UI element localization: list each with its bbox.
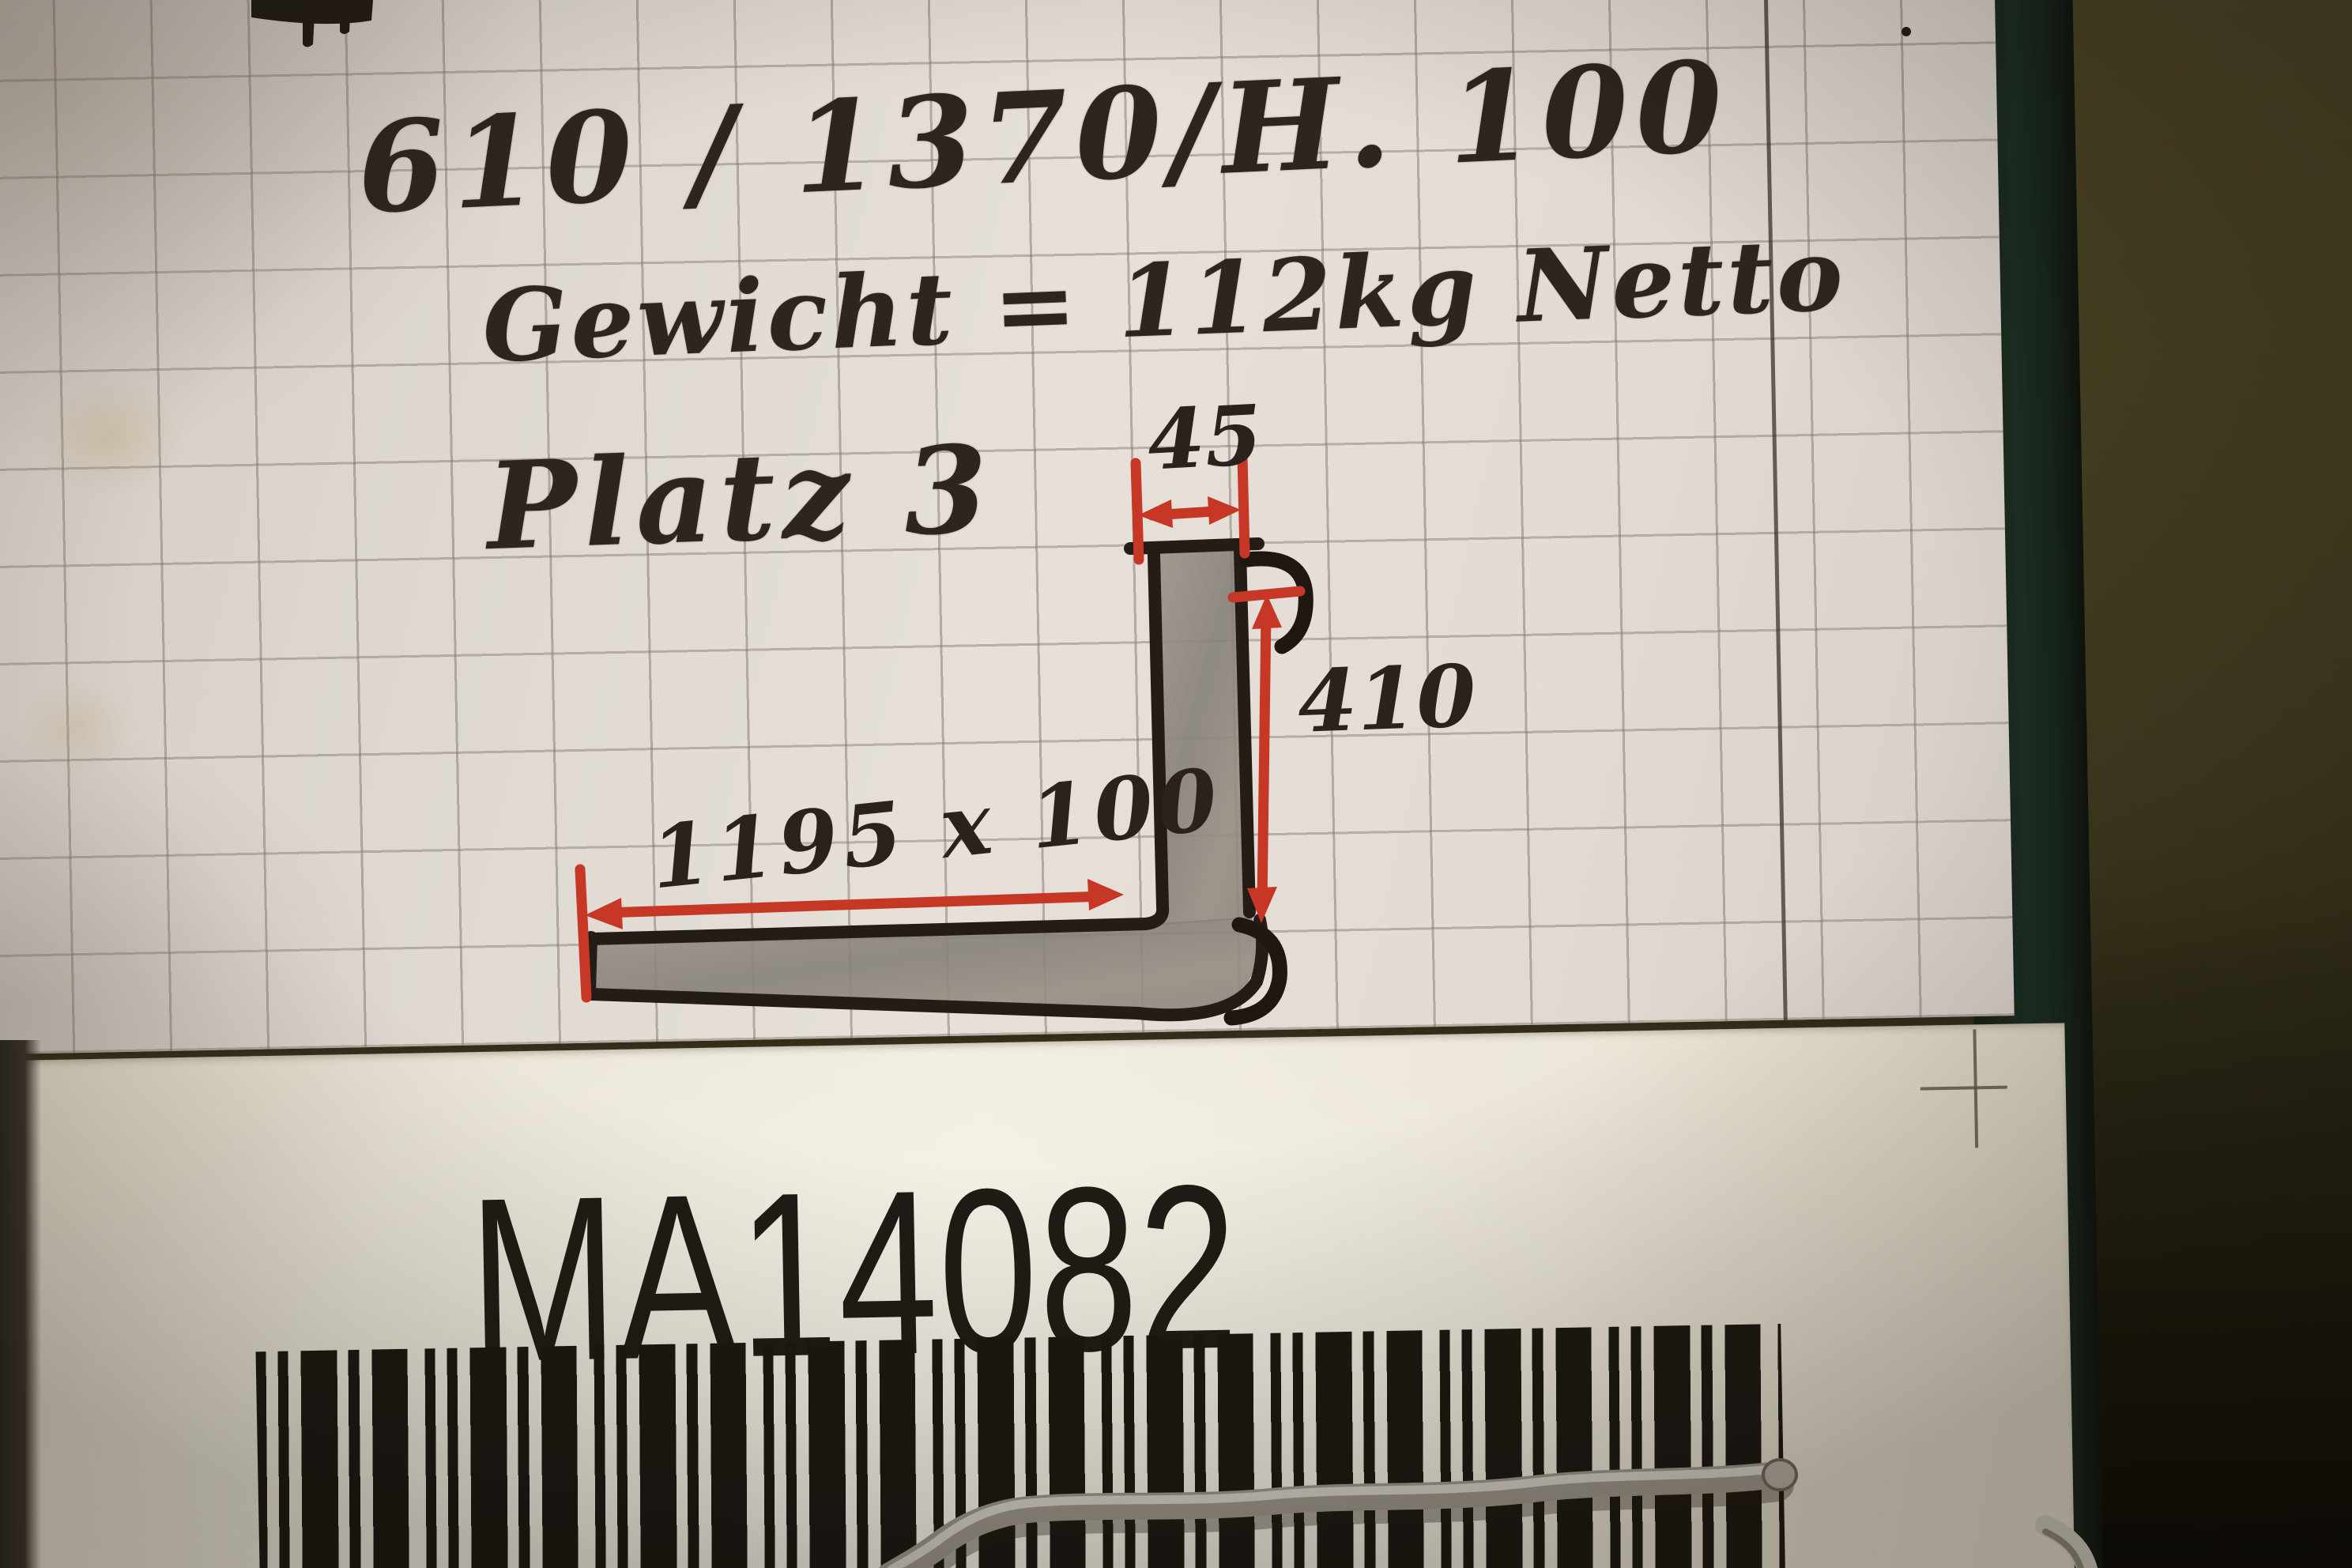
metal-wire — [0, 0, 2352, 1568]
photo-scene: 610 / 1370/H. 100 Gewicht = 112kg Netto … — [0, 0, 2352, 1568]
wire-end-cap — [1763, 1460, 1796, 1490]
